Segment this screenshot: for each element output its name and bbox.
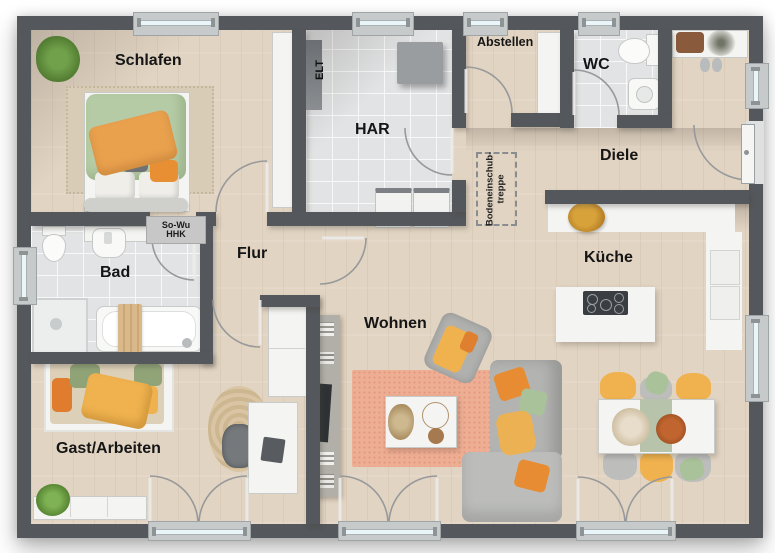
french-door-wohnen-threshold xyxy=(338,521,441,541)
room-label-wohnen: Wohnen xyxy=(364,315,427,333)
room-label-abstellen: Abstellen xyxy=(477,35,533,49)
french-door-essen-threshold xyxy=(576,521,676,541)
door-swing-abstellen xyxy=(466,67,512,113)
window-har xyxy=(352,12,414,36)
door-swing-flur-wohnen xyxy=(320,238,366,284)
door-swing-french-gast-right xyxy=(199,476,247,524)
loft-ladder-label: Bodeneinschub- treppe xyxy=(486,152,508,226)
room-label-har: HAR xyxy=(355,121,390,139)
door-swing-bad xyxy=(152,238,194,280)
door-swing-french-wohnen-right xyxy=(389,476,437,524)
loft-ladder-box: Bodeneinschub- treppe xyxy=(476,152,517,226)
room-label-flur: Flur xyxy=(237,245,267,263)
door-swing-french-essen-left xyxy=(578,477,625,524)
door-swing-french-wohnen-left xyxy=(340,476,388,524)
door-swing-french-gast-left xyxy=(150,476,198,524)
front-door-handle xyxy=(744,150,749,155)
door-swing-french-essen-right xyxy=(626,477,672,524)
door-swing-wc xyxy=(574,70,619,115)
window-diele xyxy=(745,63,769,109)
room-label-wc: WC xyxy=(583,56,610,74)
window-wc xyxy=(578,12,620,36)
door-swing-har xyxy=(405,128,452,175)
door-swing-schlafen xyxy=(216,161,267,212)
elt-label: ELT xyxy=(314,52,330,88)
room-label-bad: Bad xyxy=(100,264,130,282)
door-swing-gast xyxy=(213,300,260,347)
room-label-diele: Diele xyxy=(600,147,638,165)
heating-unit-box: So-Wu HHK xyxy=(146,216,206,244)
french-door-gast-threshold xyxy=(148,521,251,541)
window-bad xyxy=(13,247,37,305)
room-label-kueche: Küche xyxy=(584,249,633,267)
window-abstellen xyxy=(463,12,508,36)
window-essbereich xyxy=(745,315,769,402)
floor-plan: Bodeneinschub- treppe So-Wu HHK xyxy=(0,0,775,553)
room-label-schlafen: Schlafen xyxy=(115,52,182,70)
window-schlafen xyxy=(133,12,219,36)
room-label-gast-arbeiten: Gast/Arbeiten xyxy=(56,440,161,458)
heating-unit-label-2: HHK xyxy=(166,230,186,239)
